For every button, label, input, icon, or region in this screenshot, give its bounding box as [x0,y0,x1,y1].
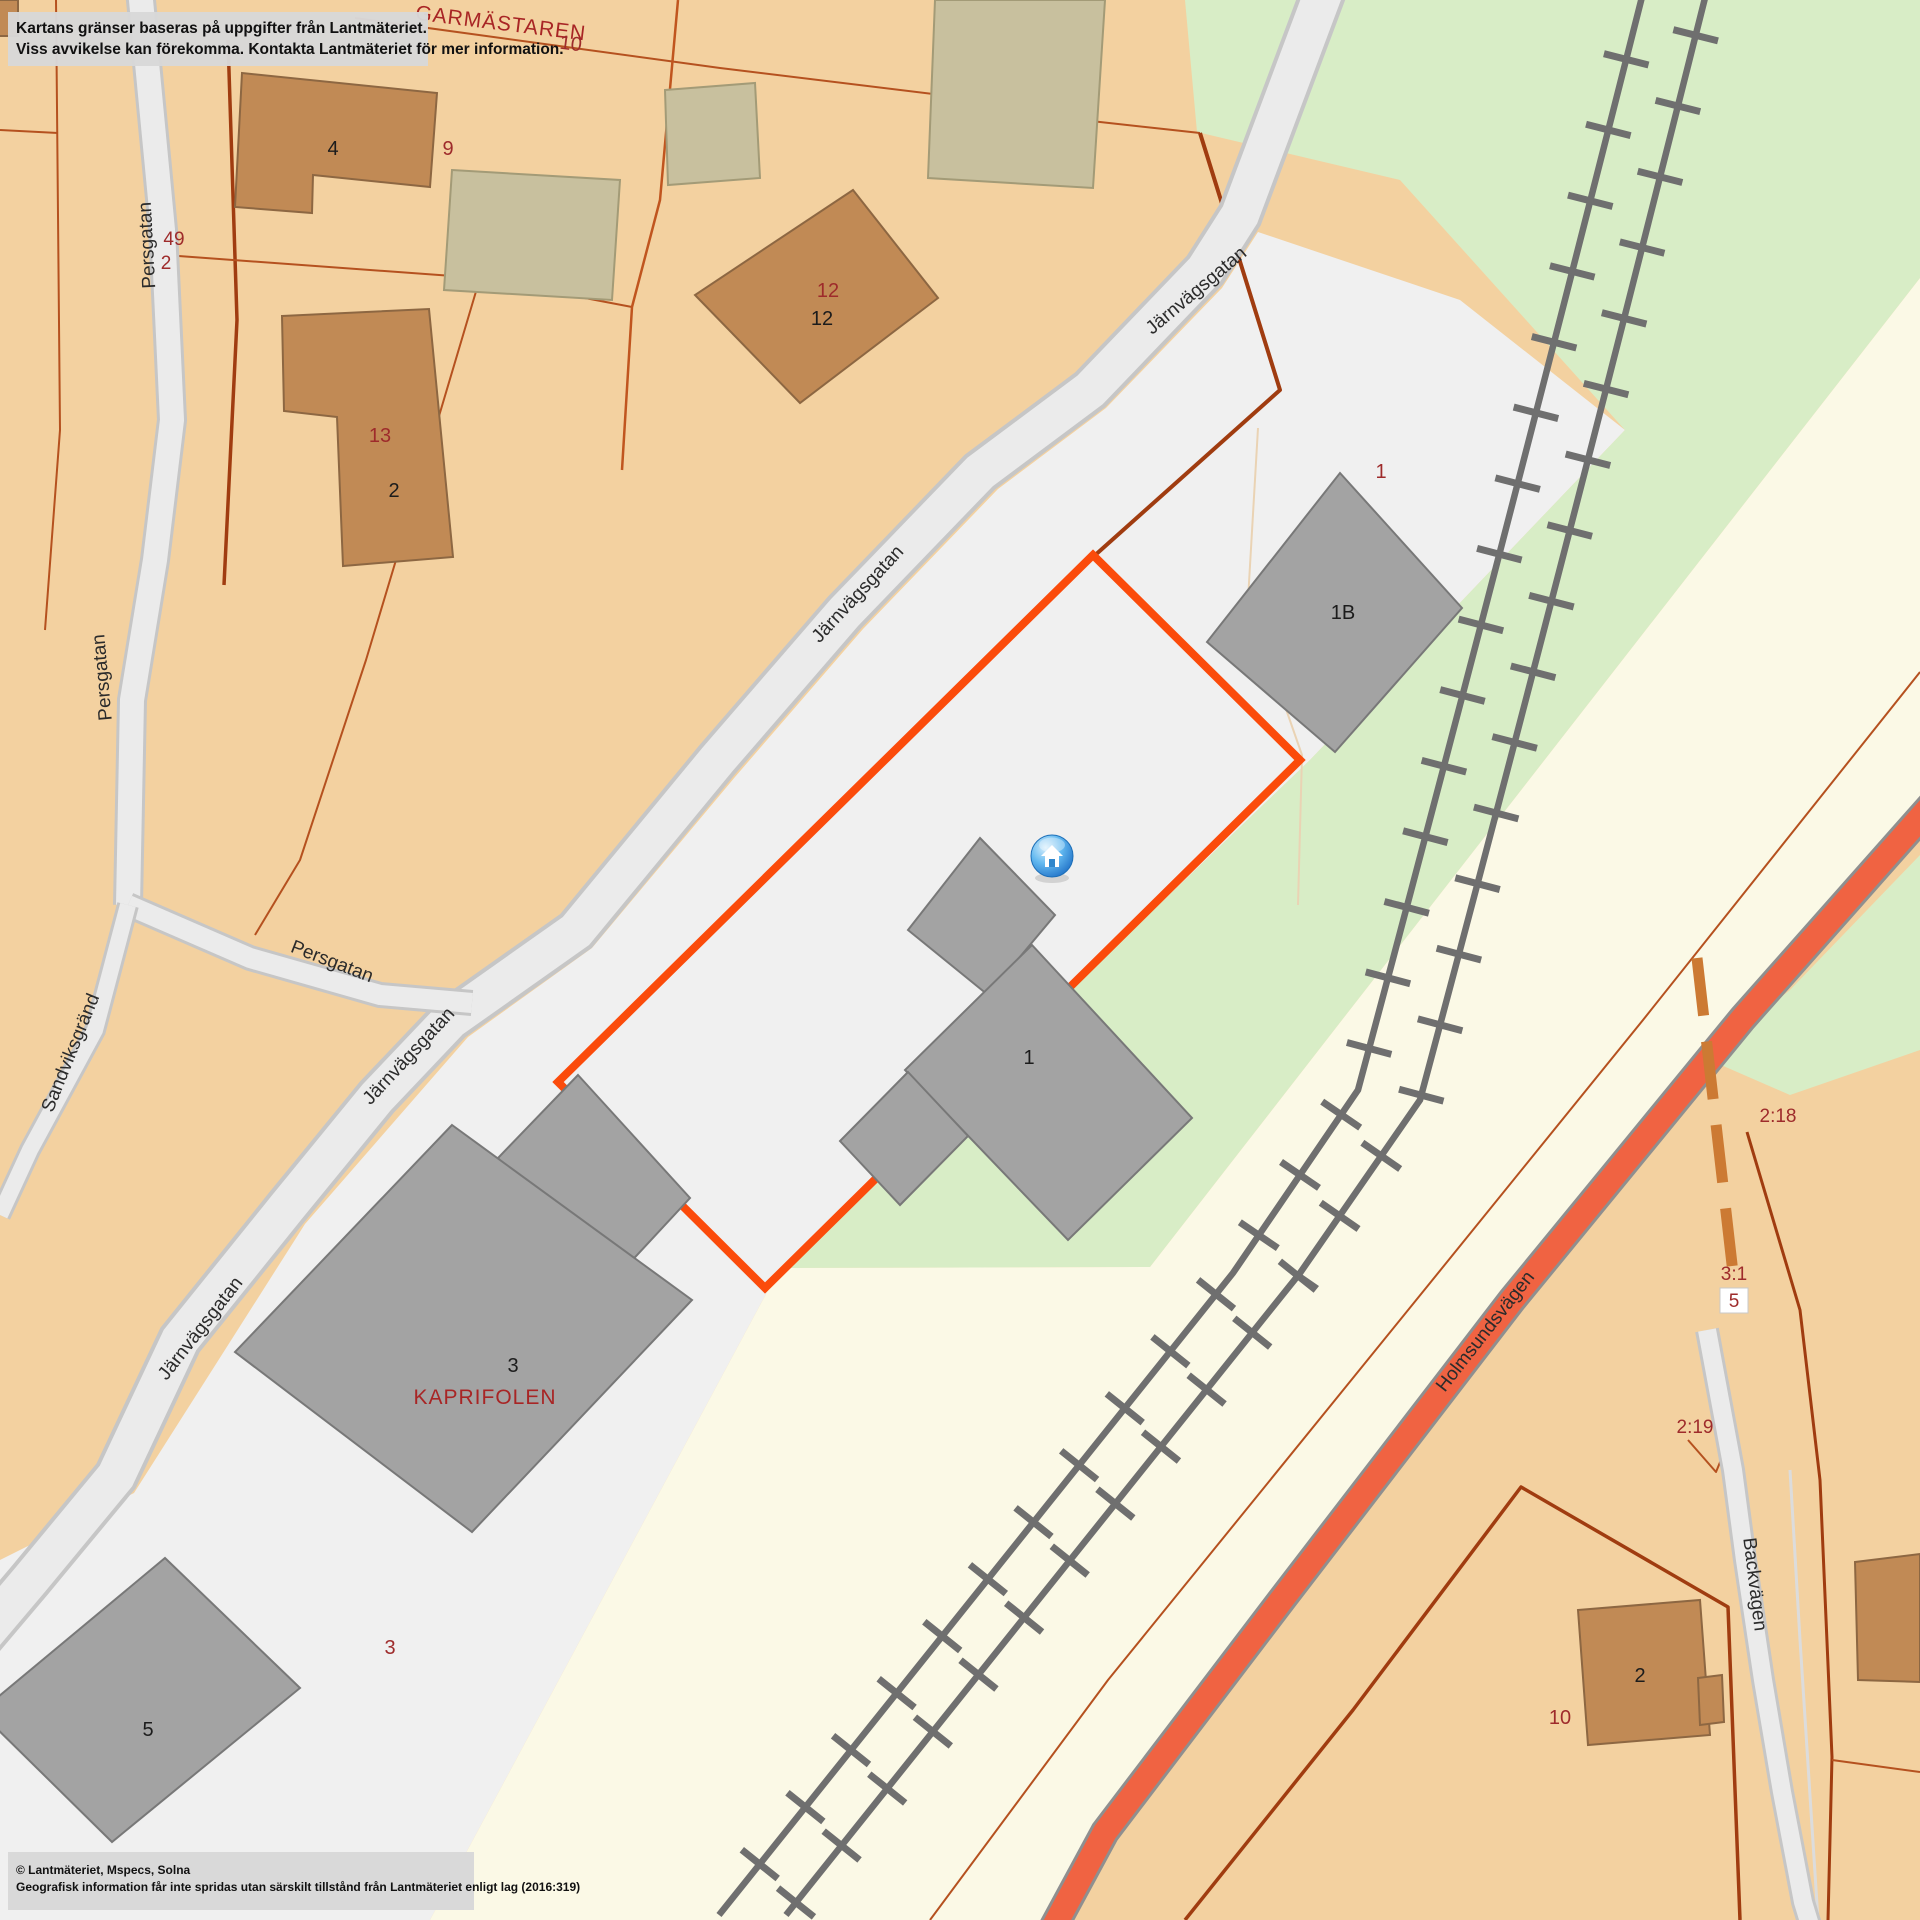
building-label-4: 4 [327,138,338,160]
parcel-label-10: 10 [1549,1707,1571,1729]
building-label-5: 5 [142,1719,153,1741]
map-viewport[interactable]: Järnvägsgatan Järnvägsgatan Järnvägsgata… [0,0,1920,1920]
disclaimer-line1: Kartans gränser baseras på uppgifter frå… [16,20,427,37]
parcel-label-9: 9 [442,138,453,160]
building-label-1: 1 [1023,1047,1034,1069]
road-shield-5-text: 5 [1729,1291,1740,1312]
map-canvas[interactable]: Järnvägsgatan Järnvägsgatan Järnvägsgata… [0,0,1920,1920]
parcel-label-13: 13 [369,425,391,447]
building-east-edge [1855,1554,1920,1682]
block-label-kaprifolen: KAPRIFOLEN [413,1386,556,1409]
copyright-line2: Geografisk information får inte spridas … [16,1880,580,1894]
parcel-label-31: 3:1 [1721,1264,1747,1285]
home-icon-door [1049,859,1055,867]
outbuilding-a [665,83,760,185]
building-label-1b: 1B [1331,602,1355,624]
outbuilding-b [444,170,620,300]
parcel-label-3: 3 [384,1637,395,1659]
parcel-label-2a: 2 [161,253,172,274]
outbuilding-c [928,0,1105,188]
copyright-line1: © Lantmäteriet, Mspecs, Solna [16,1863,191,1877]
building-label-3: 3 [507,1355,518,1377]
parcel-label-219: 2:19 [1677,1417,1714,1438]
road-shield-5: 5 [1720,1288,1748,1313]
parcel-label-12: 12 [817,280,839,302]
building-label-12: 12 [811,308,833,330]
building-label-2nw: 2 [388,480,399,502]
parcel-label-218: 2:18 [1760,1106,1797,1127]
disclaimer-line2: Viss avvikelse kan förekomma. Kontakta L… [16,41,564,58]
building-2-annex [1698,1675,1724,1725]
home-marker[interactable] [1031,835,1073,883]
building-label-2se: 2 [1634,1665,1645,1687]
parcel-label-1: 1 [1375,461,1386,483]
parcel-label-49: 49 [163,229,184,250]
